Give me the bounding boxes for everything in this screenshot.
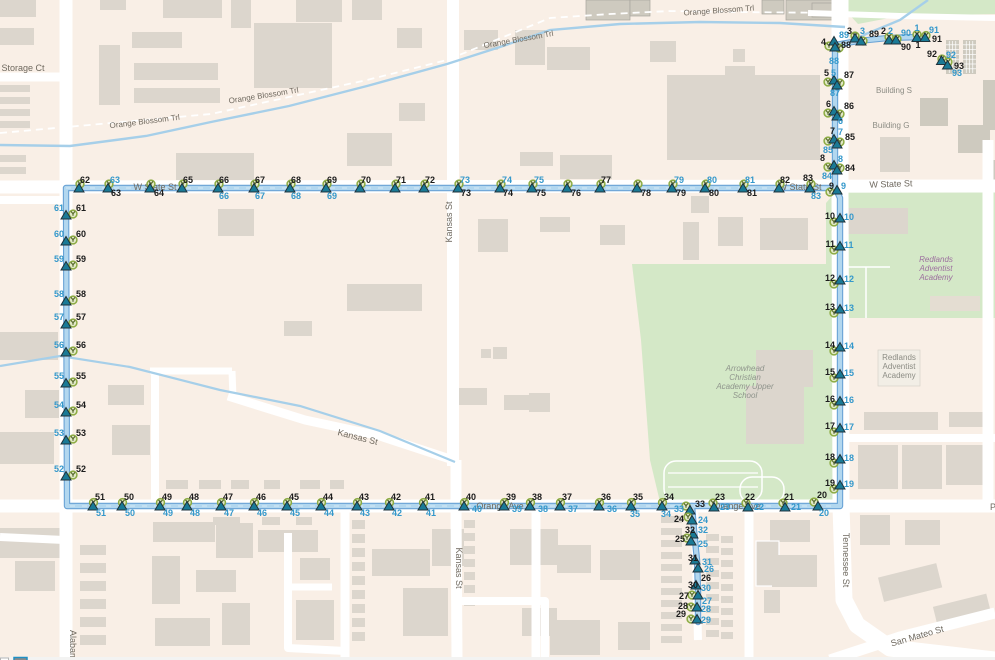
svg-text:88: 88 [841,40,851,50]
svg-text:47: 47 [223,492,233,502]
svg-text:18: 18 [844,453,854,463]
svg-text:79: 79 [674,175,684,185]
svg-text:41: 41 [426,508,436,518]
svg-text:Tennessee St: Tennessee St [841,533,851,588]
svg-text:8: 8 [820,153,825,163]
svg-text:22: 22 [754,502,764,512]
svg-text:17: 17 [844,422,854,432]
svg-text:88: 88 [829,56,839,66]
svg-text:31: 31 [688,553,698,563]
svg-text:9: 9 [829,181,834,191]
svg-text:44: 44 [323,492,333,502]
svg-text:84: 84 [822,171,832,181]
svg-text:Storage Ct: Storage Ct [1,63,45,73]
svg-text:90: 90 [901,42,911,52]
svg-text:48: 48 [189,492,199,502]
svg-text:6: 6 [838,116,843,126]
svg-text:29: 29 [701,615,711,625]
svg-text:Kansas St: Kansas St [444,201,454,243]
svg-text:71: 71 [396,175,406,185]
svg-text:61: 61 [76,203,86,213]
svg-text:57: 57 [54,312,64,322]
svg-text:43: 43 [360,508,370,518]
svg-text:Academy: Academy [882,371,915,380]
svg-text:42: 42 [392,508,402,518]
svg-text:65: 65 [183,175,193,185]
svg-text:40: 40 [472,504,482,514]
svg-text:38: 38 [538,504,548,514]
svg-text:56: 56 [54,340,64,350]
svg-text:5: 5 [824,68,829,78]
svg-text:16: 16 [844,395,854,405]
svg-text:87: 87 [844,70,854,80]
svg-text:Building G: Building G [873,121,910,130]
svg-text:93: 93 [952,68,962,78]
svg-text:76: 76 [571,188,581,198]
svg-text:81: 81 [747,188,757,198]
svg-text:56: 56 [76,340,86,350]
svg-text:20: 20 [819,508,829,518]
svg-text:45: 45 [290,508,300,518]
svg-text:63: 63 [111,188,121,198]
svg-text:37: 37 [568,504,578,514]
svg-text:46: 46 [257,508,267,518]
svg-text:48: 48 [190,508,200,518]
svg-text:92: 92 [946,50,956,60]
svg-text:67: 67 [255,175,265,185]
svg-text:19: 19 [825,478,835,488]
svg-text:11: 11 [825,239,835,249]
svg-text:68: 68 [291,191,301,201]
svg-text:3: 3 [860,26,865,36]
svg-text:Academy Upper: Academy Upper [715,382,774,391]
svg-text:18: 18 [825,452,835,462]
svg-text:Building S: Building S [876,86,912,95]
svg-text:61: 61 [54,203,64,213]
svg-text:75: 75 [534,175,544,185]
svg-text:45: 45 [289,492,299,502]
svg-text:66: 66 [219,175,229,185]
svg-text:50: 50 [125,508,135,518]
svg-text:22: 22 [745,492,755,502]
svg-text:73: 73 [460,175,470,185]
svg-text:57: 57 [76,312,86,322]
svg-text:83: 83 [803,173,813,183]
svg-text:69: 69 [327,175,337,185]
svg-text:32: 32 [698,525,708,535]
svg-text:47: 47 [224,508,234,518]
svg-text:20: 20 [817,490,827,500]
svg-text:49: 49 [163,508,173,518]
svg-text:35: 35 [633,492,643,502]
svg-text:7: 7 [830,126,835,136]
svg-text:59: 59 [54,254,64,264]
svg-text:53: 53 [76,428,86,438]
svg-text:25: 25 [675,534,685,544]
svg-text:81: 81 [745,175,755,185]
svg-text:Christian: Christian [729,373,761,382]
svg-text:Academy: Academy [918,273,953,282]
svg-text:74: 74 [502,175,512,185]
svg-text:52: 52 [54,464,64,474]
svg-text:12: 12 [844,274,854,284]
svg-text:36: 36 [607,504,617,514]
svg-text:14: 14 [844,341,854,351]
svg-text:46: 46 [256,492,266,502]
svg-text:89: 89 [869,29,879,39]
svg-text:80: 80 [707,175,717,185]
svg-text:24: 24 [698,515,708,525]
svg-text:2: 2 [881,26,886,36]
svg-text:77: 77 [601,175,611,185]
svg-text:83: 83 [811,191,821,201]
svg-text:51: 51 [95,492,105,502]
svg-text:86: 86 [844,101,854,111]
svg-text:13: 13 [825,302,835,312]
svg-text:25: 25 [698,539,708,549]
svg-text:39: 39 [512,504,522,514]
svg-text:42: 42 [391,492,401,502]
svg-text:16: 16 [825,394,835,404]
svg-text:44: 44 [324,508,334,518]
svg-text:84: 84 [845,163,855,173]
svg-text:50: 50 [124,492,134,502]
svg-text:91: 91 [932,34,942,44]
svg-text:58: 58 [54,289,64,299]
svg-text:36: 36 [601,492,611,502]
svg-text:62: 62 [80,175,90,185]
svg-text:15: 15 [825,367,835,377]
svg-text:30: 30 [701,583,711,593]
svg-text:11: 11 [844,240,854,250]
svg-text:72: 72 [425,175,435,185]
svg-text:W State St: W State St [869,178,913,190]
svg-text:60: 60 [54,229,64,239]
svg-text:64: 64 [154,188,164,198]
svg-text:70: 70 [361,175,371,185]
svg-text:4: 4 [821,37,826,47]
svg-text:54: 54 [54,400,64,410]
svg-text:Redlands: Redlands [882,353,916,362]
svg-text:27: 27 [679,591,689,601]
svg-text:Alabama St: Alabama St [68,630,78,660]
svg-text:52: 52 [76,464,86,474]
svg-text:40: 40 [466,492,476,502]
svg-text:49: 49 [162,492,172,502]
svg-text:55: 55 [76,371,86,381]
svg-text:9: 9 [841,181,846,191]
svg-text:10: 10 [825,211,835,221]
svg-text:5: 5 [831,68,836,78]
svg-text:School: School [733,391,758,400]
svg-text:90: 90 [901,28,911,38]
svg-text:15: 15 [844,368,854,378]
svg-text:29: 29 [676,609,686,619]
svg-text:73: 73 [461,188,471,198]
svg-text:33: 33 [674,504,684,514]
svg-text:6: 6 [826,99,831,109]
svg-text:92: 92 [927,49,937,59]
svg-text:67: 67 [255,191,265,201]
svg-text:21: 21 [791,502,801,512]
svg-text:28: 28 [701,604,711,614]
svg-text:10: 10 [844,212,854,222]
svg-text:Adventist: Adventist [919,264,954,273]
svg-text:79: 79 [676,188,686,198]
svg-text:37: 37 [562,492,572,502]
svg-text:74: 74 [503,188,513,198]
svg-text:59: 59 [76,254,86,264]
svg-text:35: 35 [630,509,640,519]
svg-text:63: 63 [110,175,120,185]
svg-text:54: 54 [76,400,86,410]
svg-text:43: 43 [359,492,369,502]
svg-text:17: 17 [825,421,835,431]
svg-text:12: 12 [825,273,835,283]
svg-text:75: 75 [536,188,546,198]
svg-text:13: 13 [844,303,854,313]
svg-text:87: 87 [830,88,840,98]
svg-text:39: 39 [506,492,516,502]
svg-text:69: 69 [327,191,337,201]
svg-text:Kansas St: Kansas St [454,547,464,589]
svg-text:78: 78 [641,188,651,198]
svg-text:34: 34 [661,509,671,519]
svg-text:P: P [990,502,995,512]
svg-text:53: 53 [54,428,64,438]
svg-text:23: 23 [720,502,730,512]
svg-text:55: 55 [54,371,64,381]
svg-text:3: 3 [847,26,852,36]
svg-text:38: 38 [532,492,542,502]
svg-text:23: 23 [715,492,725,502]
svg-text:7: 7 [838,127,843,137]
svg-text:8: 8 [838,154,843,164]
svg-text:58: 58 [76,289,86,299]
svg-text:68: 68 [291,175,301,185]
svg-text:82: 82 [780,175,790,185]
svg-text:34: 34 [664,492,674,502]
svg-text:33: 33 [695,499,705,509]
svg-text:41: 41 [425,492,435,502]
svg-text:19: 19 [844,479,854,489]
svg-text:Arrowhead: Arrowhead [725,364,765,373]
svg-text:14: 14 [825,340,835,350]
svg-text:24: 24 [674,514,684,524]
svg-text:1: 1 [915,40,920,50]
svg-text:Redlands: Redlands [919,255,953,264]
svg-text:66: 66 [219,191,229,201]
svg-text:2: 2 [888,26,893,36]
svg-text:30: 30 [688,580,698,590]
svg-text:51: 51 [96,508,106,518]
svg-text:80: 80 [709,188,719,198]
svg-text:Adventist: Adventist [883,362,917,371]
svg-text:60: 60 [76,229,86,239]
svg-text:26: 26 [701,573,711,583]
svg-text:1: 1 [914,23,919,33]
svg-text:85: 85 [845,132,855,142]
svg-text:21: 21 [784,492,794,502]
